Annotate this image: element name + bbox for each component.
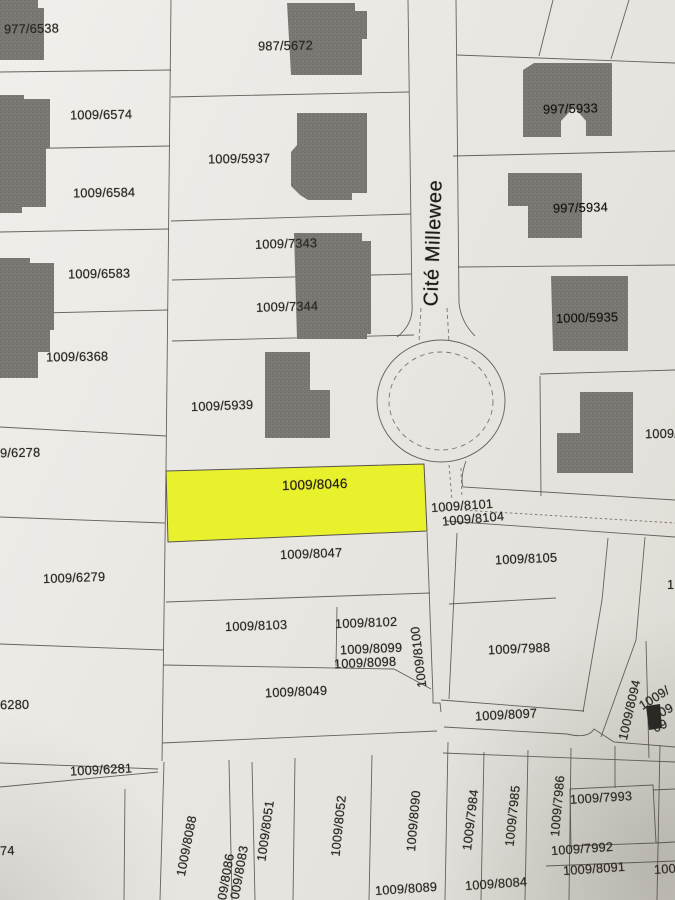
building-1009-6574-6584	[0, 95, 50, 213]
parcel-label-987-5672: 987/5672	[258, 40, 313, 54]
parcel-label-1009-5937: 1009/5937	[208, 152, 271, 166]
building-1009-5937	[291, 113, 367, 200]
highlighted-parcel-1009-8046	[166, 464, 427, 542]
parcel-label-1009-8049: 1009/8049	[265, 685, 328, 701]
building-right-edge	[557, 392, 633, 473]
parcel-label-1009-6574: 1009/6574	[70, 108, 133, 122]
parcel-label-1009-7343: 1009/7343	[255, 237, 318, 251]
parcel-label-1009-6368: 1009/6368	[46, 350, 109, 364]
parcel-label-1009-8105: 1009/8105	[495, 552, 558, 568]
parcel-label-1009-8102: 1009/8102	[335, 616, 398, 631]
parcel-label-1009-truncated-top-right: 1009/	[645, 428, 675, 441]
building-997-5933	[523, 63, 612, 137]
parcel-label-1009-6584: 1009/6584	[73, 186, 136, 200]
parcel-label-1009-6583: 1009/6583	[68, 267, 131, 281]
building-1009-5939	[265, 352, 330, 438]
parcel-label-74-truncated: 74	[0, 845, 15, 858]
parcel-label-997-5934: 997/5934	[553, 201, 608, 215]
cadastral-map-photo: Cité Millewee 977/6538 1009/6574 1009/65…	[0, 0, 675, 900]
parcel-label-1009-7344: 1009/7344	[256, 300, 319, 314]
parcel-label-1009-7988: 1009/7988	[488, 642, 551, 658]
parcel-label-997-5933: 997/5933	[543, 102, 598, 116]
parcel-label-1009-8046: 1009/8046	[282, 477, 348, 493]
parcel-label-1009-truncated-bottom-right: 1009	[654, 862, 675, 877]
parcel-label-1009-8047: 1009/8047	[280, 547, 343, 562]
parcel-label-1009-8103: 1009/8103	[225, 619, 288, 634]
parcel-label-977-6538: 977/6538	[4, 23, 59, 37]
parcel-label-1009-6280-truncated: 6280	[0, 699, 29, 712]
parcel-label-1009-6279: 1009/6279	[43, 571, 106, 586]
street-label: Cité Millewee	[420, 179, 447, 306]
parcel-label-1000-5935: 1000/5935	[556, 311, 619, 325]
parcel-label-truncated-right-mid: 1	[667, 579, 674, 592]
parcel-label-1009-6278-truncated: 9/6278	[0, 447, 40, 460]
parcel-label-1009-5939: 1009/5939	[191, 399, 254, 414]
parcel-label-1009-8098: 1009/8098	[334, 656, 397, 672]
